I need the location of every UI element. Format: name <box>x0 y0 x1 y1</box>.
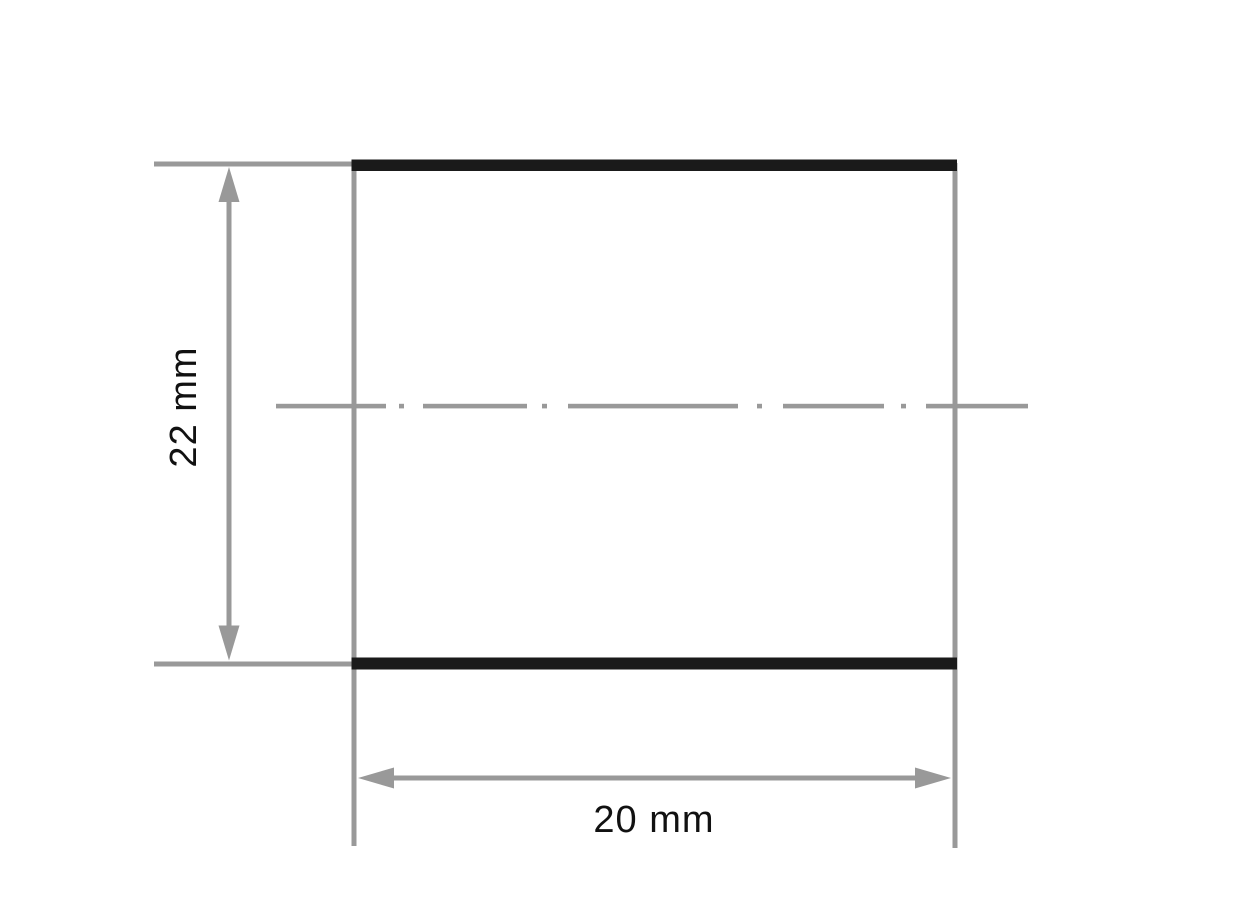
svg-text:20 mm: 20 mm <box>593 799 714 841</box>
svg-text:22 mm: 22 mm <box>163 346 205 467</box>
